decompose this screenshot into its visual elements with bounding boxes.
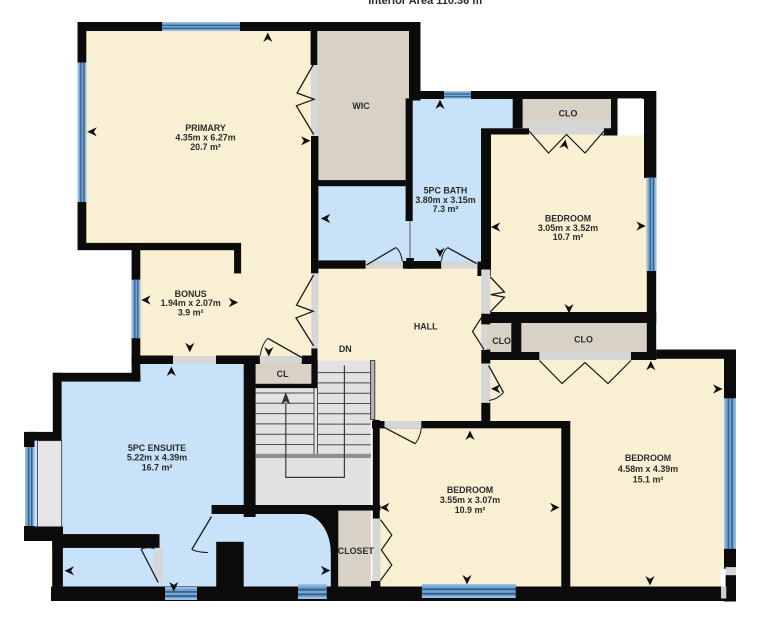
svg-text:CLO: CLO bbox=[559, 109, 578, 119]
svg-text:HALL: HALL bbox=[414, 322, 438, 332]
svg-text:15.1 m²: 15.1 m² bbox=[633, 474, 664, 484]
svg-text:7.3 m²: 7.3 m² bbox=[433, 204, 459, 214]
svg-text:Interior Area 110.36 m²: Interior Area 110.36 m² bbox=[368, 0, 486, 7]
svg-text:PRIMARY: PRIMARY bbox=[185, 123, 226, 133]
svg-text:3.9 m²: 3.9 m² bbox=[178, 308, 204, 318]
svg-text:3.55m x 3.07m: 3.55m x 3.07m bbox=[440, 495, 500, 505]
svg-text:16.7 m²: 16.7 m² bbox=[142, 462, 173, 472]
svg-text:5PC ENSUITE: 5PC ENSUITE bbox=[128, 443, 186, 453]
svg-text:10.9 m²: 10.9 m² bbox=[455, 505, 486, 515]
svg-text:4.35m x 6.27m: 4.35m x 6.27m bbox=[175, 133, 235, 143]
svg-text:BEDROOM: BEDROOM bbox=[447, 485, 493, 495]
svg-text:10.7 m²: 10.7 m² bbox=[553, 232, 584, 242]
svg-text:20.7 m²: 20.7 m² bbox=[190, 142, 221, 152]
svg-text:CLO: CLO bbox=[492, 336, 511, 346]
svg-text:WIC: WIC bbox=[352, 101, 370, 111]
svg-text:CLO: CLO bbox=[574, 335, 593, 345]
svg-text:CL: CL bbox=[277, 369, 289, 379]
svg-text:5.22m x 4.39m: 5.22m x 4.39m bbox=[127, 453, 187, 463]
svg-text:BEDROOM: BEDROOM bbox=[625, 453, 671, 463]
svg-text:4.58m x 4.39m: 4.58m x 4.39m bbox=[618, 464, 678, 474]
svg-text:DN: DN bbox=[339, 344, 352, 354]
svg-text:CLOSET: CLOSET bbox=[338, 546, 375, 556]
